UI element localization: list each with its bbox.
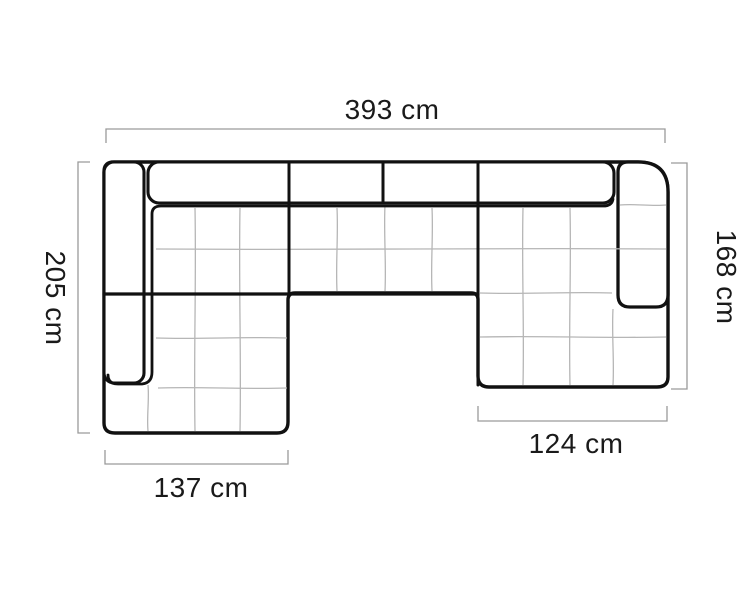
quilt-line <box>620 205 666 206</box>
sofa-dimension-diagram: 393 cm 205 cm 168 cm 137 cm 124 cm <box>0 0 751 601</box>
dimension-label-right-chaise-width: 124 cm <box>529 428 624 459</box>
dimension-line-right-chaise-width <box>478 406 667 421</box>
quilt-line <box>480 293 612 294</box>
quilt-line <box>240 208 241 431</box>
left-armrest <box>104 162 144 383</box>
dimension-label-left-chaise-width: 137 cm <box>154 472 249 503</box>
dimension-label-total-width: 393 cm <box>345 94 440 125</box>
quilt-line <box>148 385 149 431</box>
quilt-line <box>523 208 524 385</box>
quilt-line <box>570 208 571 385</box>
quilt-line <box>480 337 666 338</box>
quilt-line <box>195 208 196 431</box>
dimension-label-right-depth: 168 cm <box>711 230 742 325</box>
dimension-label-left-depth: 205 cm <box>40 251 71 346</box>
sofa-body <box>104 162 668 433</box>
dimension-line-left-chaise-width <box>105 450 288 464</box>
diagram-svg: 393 cm 205 cm 168 cm 137 cm 124 cm <box>0 0 751 601</box>
dimension-line-left-depth <box>78 162 90 433</box>
right-armrest <box>618 162 668 307</box>
quilt-line <box>613 309 614 385</box>
quilt-line <box>385 205 386 291</box>
quilt-line <box>156 249 666 250</box>
quilt-line <box>158 388 287 389</box>
dimension-line-total-width <box>106 129 665 143</box>
dimension-line-right-depth <box>671 163 687 389</box>
quilt-line <box>156 338 287 339</box>
backrest-cushion <box>148 162 614 203</box>
